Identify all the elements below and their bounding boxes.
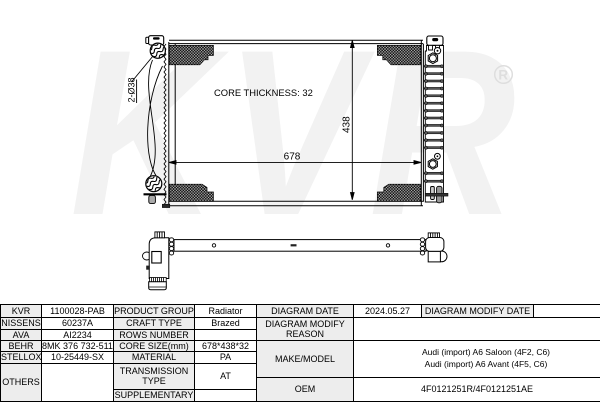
svg-text:438: 438 xyxy=(342,116,353,133)
svg-text:678: 678 xyxy=(284,152,301,163)
svg-text:2-Ø38: 2-Ø38 xyxy=(127,77,137,102)
svg-text:R: R xyxy=(498,68,508,83)
svg-text:CORE THICKNESS: 32: CORE THICKNESS: 32 xyxy=(214,87,313,98)
